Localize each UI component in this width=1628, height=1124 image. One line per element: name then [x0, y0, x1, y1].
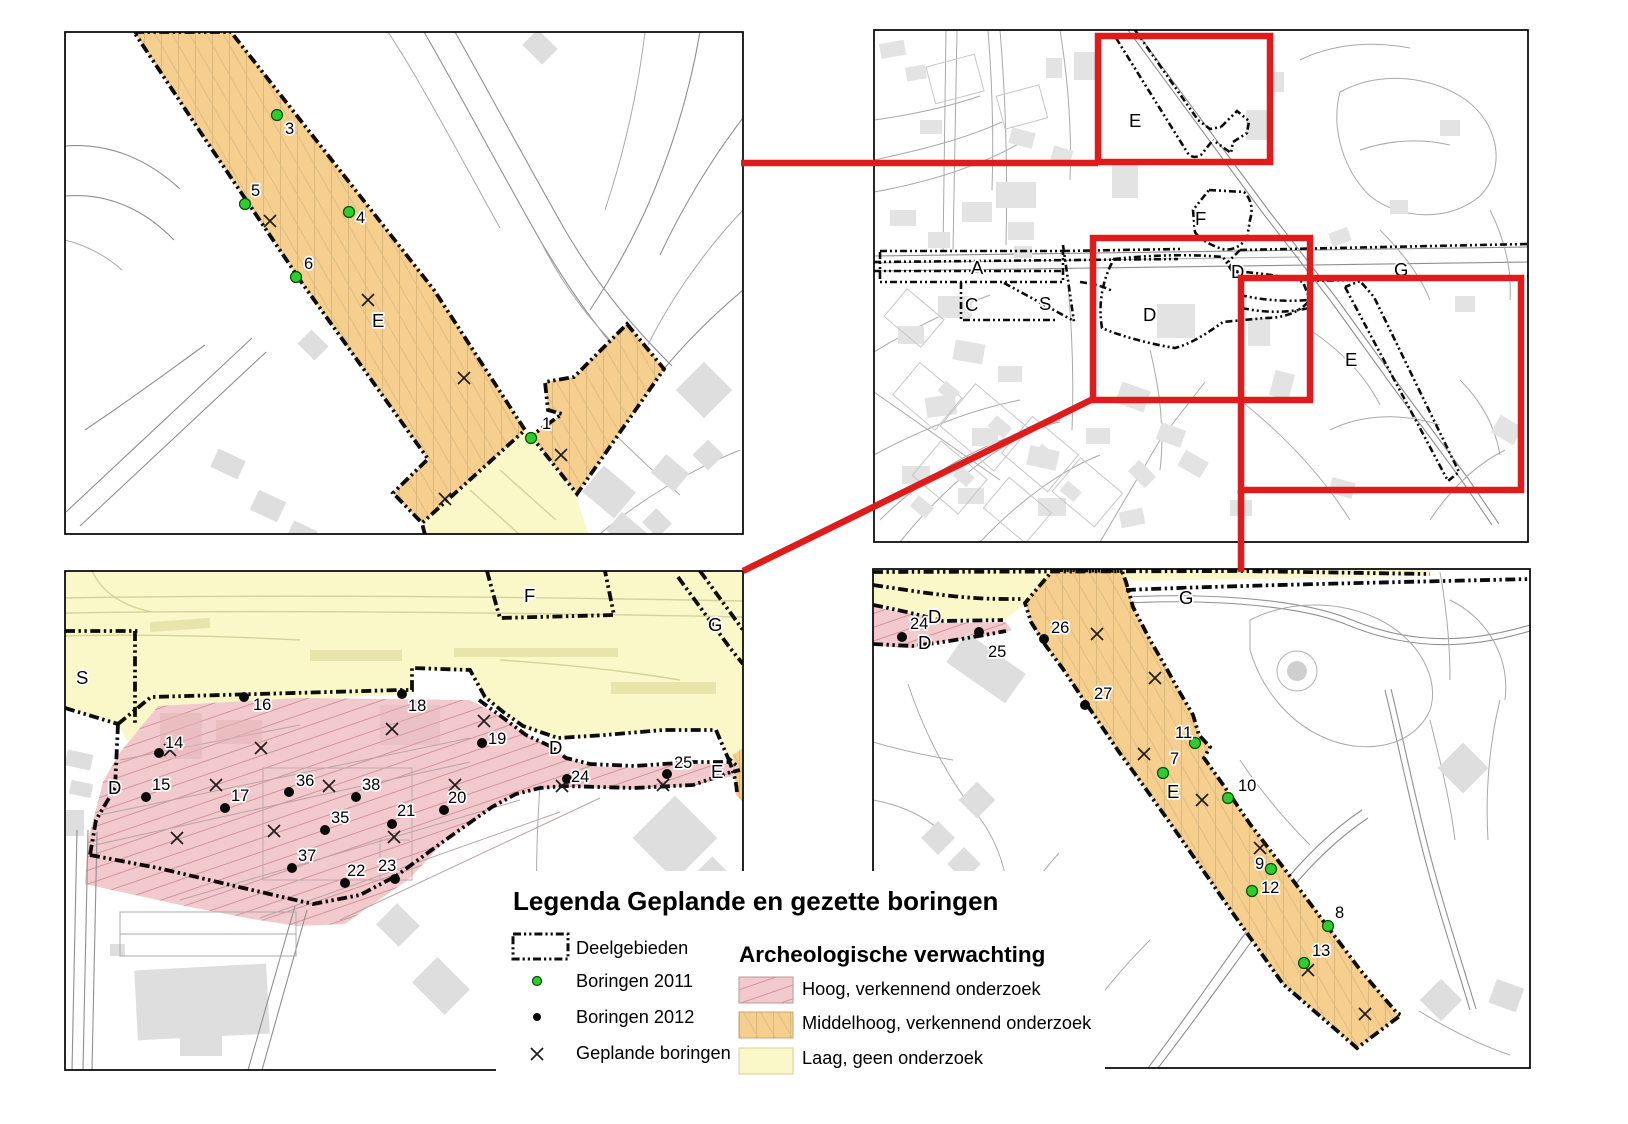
- svg-text:Hoog, verkennend onderzoek: Hoog, verkennend onderzoek: [802, 979, 1042, 999]
- svg-text:24: 24: [571, 768, 589, 786]
- svg-text:23: 23: [378, 857, 396, 875]
- svg-text:D: D: [108, 777, 121, 798]
- svg-text:Middelhoog, verkennend onderzo: Middelhoog, verkennend onderzoek: [802, 1013, 1092, 1033]
- svg-text:14: 14: [165, 734, 183, 752]
- svg-text:37: 37: [298, 847, 316, 865]
- svg-text:E: E: [1167, 781, 1179, 802]
- svg-text:Legenda Geplande en gezette bo: Legenda Geplande en gezette boringen: [513, 886, 998, 916]
- svg-text:F: F: [524, 585, 535, 606]
- svg-text:17: 17: [231, 787, 249, 805]
- svg-text:D: D: [918, 632, 931, 653]
- svg-text:9: 9: [1255, 855, 1264, 873]
- svg-text:E: E: [711, 761, 723, 782]
- svg-text:1: 1: [542, 415, 551, 433]
- svg-text:S: S: [1039, 293, 1051, 314]
- svg-text:13: 13: [1312, 942, 1330, 960]
- svg-text:10: 10: [1238, 777, 1256, 795]
- svg-text:38: 38: [362, 776, 380, 794]
- svg-text:E: E: [1345, 349, 1357, 370]
- svg-text:19: 19: [488, 730, 506, 748]
- svg-text:6: 6: [304, 255, 313, 273]
- svg-text:18: 18: [408, 697, 426, 715]
- svg-text:D: D: [1143, 304, 1156, 325]
- svg-text:Deelgebieden: Deelgebieden: [576, 938, 688, 958]
- svg-text:26: 26: [1051, 619, 1069, 637]
- svg-text:4: 4: [356, 209, 365, 227]
- svg-text:Boringen 2012: Boringen 2012: [576, 1007, 694, 1027]
- svg-text:E: E: [1129, 110, 1141, 131]
- svg-text:E: E: [372, 310, 384, 331]
- svg-text:Geplande boringen: Geplande boringen: [576, 1043, 731, 1063]
- svg-text:G: G: [708, 614, 722, 635]
- svg-text:S: S: [76, 667, 88, 688]
- svg-text:D: D: [928, 606, 941, 627]
- svg-text:3: 3: [285, 120, 294, 138]
- svg-text:22: 22: [347, 862, 365, 880]
- svg-text:G: G: [1179, 587, 1193, 608]
- svg-text:D: D: [549, 737, 562, 758]
- svg-text:27: 27: [1094, 685, 1112, 703]
- svg-text:A: A: [971, 257, 984, 278]
- svg-text:36: 36: [296, 772, 314, 790]
- svg-text:12: 12: [1261, 879, 1279, 897]
- svg-text:5: 5: [251, 182, 260, 200]
- svg-text:7: 7: [1170, 750, 1179, 768]
- svg-text:11: 11: [1175, 724, 1192, 742]
- svg-text:F: F: [1195, 208, 1206, 229]
- svg-text:25: 25: [988, 643, 1006, 661]
- svg-text:20: 20: [448, 789, 466, 807]
- svg-text:Laag, geen onderzoek: Laag, geen onderzoek: [802, 1048, 984, 1068]
- svg-text:15: 15: [152, 776, 170, 794]
- svg-text:21: 21: [397, 802, 415, 820]
- svg-text:8: 8: [1335, 904, 1344, 922]
- svg-text:16: 16: [253, 696, 271, 714]
- svg-text:Boringen 2011: Boringen 2011: [576, 971, 693, 991]
- svg-text:24: 24: [910, 615, 928, 633]
- svg-text:C: C: [965, 294, 978, 315]
- svg-text:25: 25: [674, 754, 692, 772]
- svg-text:35: 35: [331, 809, 349, 827]
- svg-text:Archeologische verwachting: Archeologische verwachting: [739, 942, 1045, 967]
